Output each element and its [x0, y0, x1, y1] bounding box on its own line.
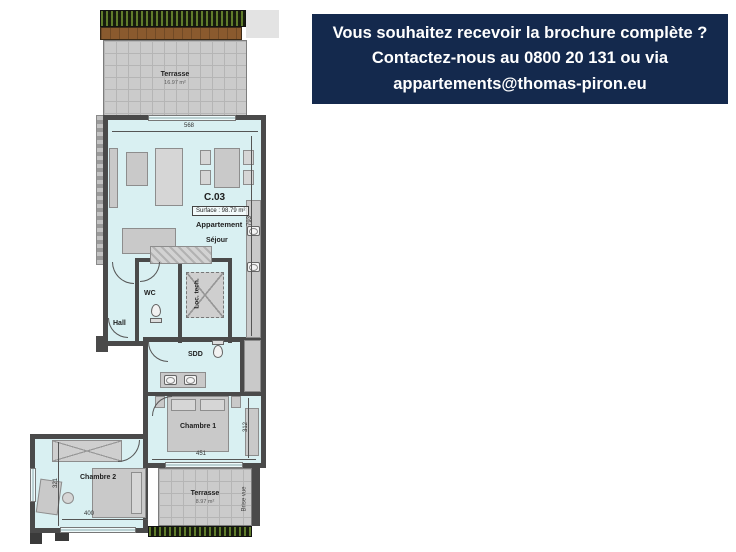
terrace-bottom: Terrasse 8.97 m² — [158, 468, 252, 526]
kitchen-sink — [247, 226, 260, 236]
wall — [135, 258, 139, 343]
brise-vue-wall — [252, 468, 260, 526]
wc-toilet-tank — [150, 318, 162, 323]
armchair — [126, 152, 148, 186]
hedge-strip-bottom — [148, 526, 252, 537]
chambre2-window — [60, 527, 136, 533]
dining-table — [214, 148, 240, 188]
terrace-top: Terrasse 16.97 m² — [103, 40, 247, 116]
wall — [228, 262, 232, 343]
dining-chair — [243, 170, 254, 185]
banner-email: appartements@thomas-piron.eu — [393, 72, 647, 98]
sofa — [155, 148, 183, 206]
terrace-bottom-area: 8.97 m² — [196, 499, 215, 505]
sdd-toilet-bowl — [213, 345, 223, 358]
dim-line — [112, 131, 258, 132]
brochure-banner: Vous souhaitez recevoir la brochure comp… — [312, 14, 728, 104]
pillow — [200, 399, 225, 411]
dim-chambre2-width: 400 — [84, 511, 94, 517]
dining-chair — [200, 170, 211, 185]
dim-chambre2-depth: 321 — [53, 478, 59, 488]
banner-line2: Contactez-nous au 0800 20 131 ou via — [372, 46, 668, 72]
site-mark — [30, 533, 42, 544]
sejour-window — [148, 115, 236, 121]
dim-line — [62, 519, 148, 520]
chambre2-label: Chambre 2 — [80, 474, 116, 481]
chambre2-side-window — [30, 468, 36, 502]
dim-top: 568 — [184, 123, 194, 129]
site-mark — [55, 533, 69, 541]
pillow — [171, 399, 196, 411]
dim-line — [152, 459, 256, 460]
entry-step — [96, 336, 108, 352]
chambre1-label: Chambre 1 — [180, 423, 216, 430]
dim-chambre1-depth: 312 — [243, 422, 249, 432]
neighbor-area — [246, 10, 279, 38]
hedge-strip-top — [100, 10, 246, 27]
boiler-unit — [186, 272, 224, 318]
surface-label: Surface : 98.79 m² — [192, 206, 249, 216]
duct-area — [244, 340, 261, 392]
terrace-bottom-label: Terrasse — [191, 490, 220, 497]
wall — [178, 262, 182, 343]
unit-type-label: Appartement — [196, 220, 242, 229]
terrace-top-area: 16.97 m² — [164, 80, 186, 86]
hall-label: Hall — [113, 320, 126, 327]
dining-chair — [200, 150, 211, 165]
sdd-label: SDD — [188, 351, 203, 358]
wardrobe-2 — [52, 440, 122, 462]
dim-right: 793 — [247, 216, 253, 226]
terrace-top-label: Terrasse — [161, 71, 190, 78]
nightstand — [231, 396, 241, 408]
loc-tech-label: Loc. tech. — [194, 278, 201, 308]
vanity-sink — [164, 375, 177, 385]
wood-deck-strip — [100, 27, 242, 40]
vanity-sink — [184, 375, 197, 385]
wc-toilet-bowl — [151, 304, 161, 317]
kitchen-hob — [247, 262, 260, 272]
wc-label: WC — [144, 290, 156, 297]
sejour-label: Séjour — [206, 237, 228, 244]
dim-line — [251, 136, 252, 336]
pillow — [131, 472, 142, 514]
dining-chair — [243, 150, 254, 165]
floor-plan: Terrasse 16.97 m² — [0, 0, 310, 552]
unit-id-label: C.03 — [204, 192, 225, 203]
brise-vue-label: Brise vue — [242, 486, 248, 511]
desk-chair — [62, 492, 74, 504]
banner-line1: Vous souhaitez recevoir la brochure comp… — [333, 21, 708, 47]
tv-sideboard — [109, 148, 118, 208]
dim-chambre1-width: 451 — [196, 451, 206, 457]
